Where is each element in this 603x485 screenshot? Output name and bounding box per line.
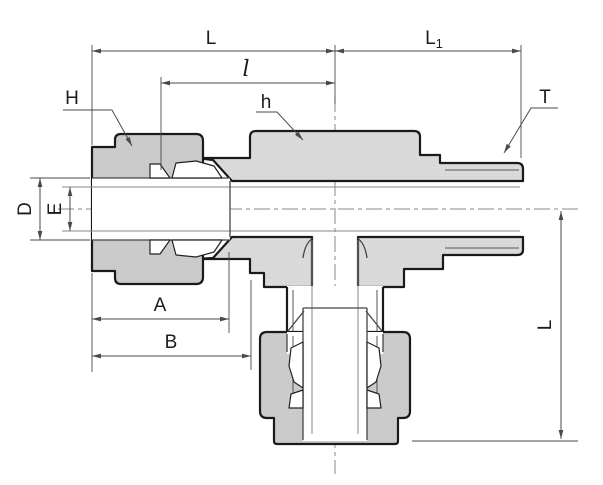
dim-label-T: T: [539, 87, 551, 108]
left-front-ferrule-bottom: [172, 240, 222, 257]
dim-label-h: h: [261, 92, 272, 113]
dim-label-l: l: [242, 57, 249, 82]
body-lower-right: [358, 237, 523, 287]
dim-label-B: B: [165, 332, 178, 353]
fitting-technical-drawing: L L1 l H h T D E A B L: [0, 0, 603, 485]
leader-T: [504, 108, 558, 153]
drawing-canvas: L L1 l H h T D E A B L: [0, 0, 603, 485]
branch-tube: [303, 308, 367, 441]
tube-channels: [92, 178, 383, 441]
left-front-ferrule-top: [172, 161, 222, 178]
dim-label-H: H: [65, 88, 79, 109]
dim-label-L-run: L: [206, 28, 217, 49]
dim-label-E: E: [45, 203, 66, 216]
dim-label-L-vertical: L: [535, 320, 556, 331]
dim-label-D: D: [15, 202, 36, 216]
dim-label-A: A: [154, 295, 167, 316]
body-upper-half: [197, 131, 523, 181]
dim-label-L1: L1: [425, 28, 443, 51]
